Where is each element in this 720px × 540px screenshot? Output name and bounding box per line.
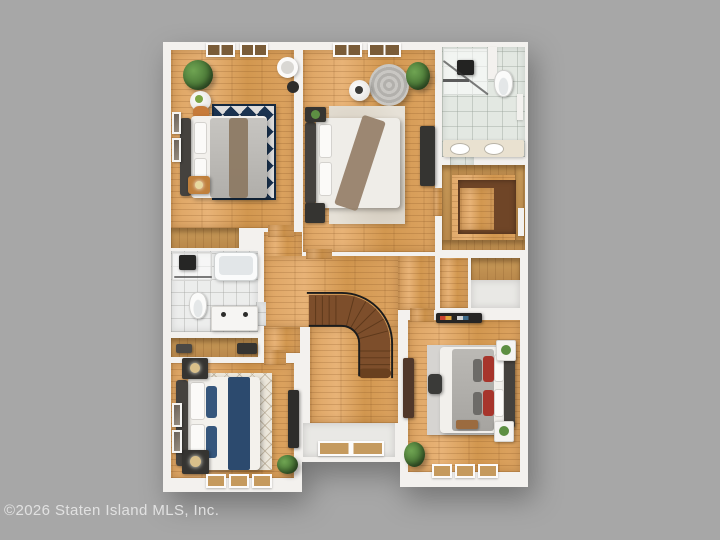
- window-bottom-left-1: [206, 474, 226, 488]
- bed-top-middle-pillow-1: [319, 124, 332, 158]
- plant-bottom-left-bedroom: [277, 455, 298, 474]
- hall-band-floor: [398, 256, 435, 310]
- bed-top-middle-pillow-2: [319, 162, 332, 196]
- wic-shelf-bottom: [442, 240, 525, 250]
- wall-art-bottom-left-2: [172, 430, 182, 453]
- closet-b-shelf: [471, 258, 520, 280]
- wall-art-top-left-1: [172, 112, 181, 134]
- lamp-bottom-left-2: [190, 456, 201, 467]
- wic-door-leaf: [518, 208, 524, 236]
- window-bottom-left-3: [252, 474, 272, 488]
- door-bedroom-top-left: [268, 225, 294, 237]
- shower-glass-ml: [174, 276, 212, 278]
- nightstand-top-middle-2: [305, 203, 325, 223]
- window-top-middle-2: [368, 43, 401, 57]
- fruit-bowl: [195, 95, 203, 103]
- bed-bottom-left-runner: [228, 377, 250, 470]
- sink-top-right-1: [450, 143, 470, 155]
- wic-shelf-left: [442, 165, 452, 250]
- window-bottom-right-2: [455, 464, 475, 478]
- door-bedroom-bottom-left: [264, 350, 286, 365]
- bed-bottom-right-gray-pillow-2: [473, 392, 482, 415]
- window-bottom-right-1: [432, 464, 452, 478]
- faucet-ml-1: [221, 312, 226, 317]
- door-bedroom-top-middle: [306, 249, 332, 259]
- window-top-left-2: [240, 43, 268, 57]
- window-top-left-1: [206, 43, 235, 57]
- linen-closet-items-2: [176, 344, 192, 353]
- wall-shelf-bottom-right: [436, 313, 482, 323]
- stool-bottom-right: [428, 374, 442, 394]
- window-bottom-right-3: [478, 464, 498, 478]
- staircase: [303, 291, 395, 383]
- shelf-books: [440, 316, 478, 320]
- bed-bottom-right-red-pillow-2: [483, 390, 494, 416]
- bathtub-interior: [219, 256, 253, 275]
- round-mirror: [277, 57, 298, 78]
- floor-plan-photo: ©2026 Staten Island MLS, Inc.: [0, 0, 720, 540]
- sink-top-right-2: [484, 143, 504, 155]
- closet-a-floor: [440, 258, 468, 308]
- console-bottom-left: [288, 390, 299, 448]
- toilet-middle-left: [189, 292, 207, 319]
- wic-shelf-top: [442, 165, 525, 175]
- nightstand-plant-1: [311, 110, 320, 119]
- bed-bottom-right-gray-pillow-1: [473, 359, 482, 382]
- pendant-light: [287, 81, 299, 93]
- bathroom-door-leaf: [517, 94, 523, 120]
- side-table-decor: [355, 86, 363, 94]
- media-console-top-middle: [420, 126, 435, 186]
- linen-closet-top-shelf: [171, 228, 239, 248]
- plant-top-middle-bedroom: [406, 62, 430, 90]
- bed-bottom-right-headboard: [504, 352, 515, 428]
- bed-bottom-right-pillow-2: [494, 389, 504, 417]
- shower-fixture-ml: [179, 255, 196, 270]
- dresser-bottom-right: [403, 358, 414, 418]
- plant-top-left-bedroom: [183, 60, 213, 90]
- bed-bottom-left-pillow-1: [190, 382, 205, 420]
- round-lounge-chair: [369, 64, 409, 106]
- vanity-middle-left: [211, 306, 258, 331]
- lamp-top-left: [195, 181, 203, 189]
- closet-b-floor: [471, 280, 520, 308]
- faucet-ml-2: [243, 312, 248, 317]
- bed-bench: [456, 420, 478, 429]
- linen-closet-items-1: [237, 343, 257, 354]
- mls-watermark: ©2026 Staten Island MLS, Inc.: [4, 502, 219, 519]
- landing-window: [318, 441, 384, 456]
- lamp-bottom-left-1: [190, 363, 200, 373]
- wall-art-top-left-2: [172, 138, 181, 162]
- wall-art-bottom-left-1: [172, 403, 182, 427]
- wic-inner-floor: [460, 188, 494, 230]
- bed-top-left-throw: [229, 118, 248, 198]
- toilet-top-right: [494, 70, 513, 97]
- bed-top-left-pillow-1: [194, 122, 207, 154]
- bed-bottom-right-red-pillow-1: [483, 356, 494, 382]
- nightstand-plant-br-1: [501, 345, 511, 355]
- window-top-middle-1: [333, 43, 362, 57]
- door-bedroom-bottom-right: [410, 308, 434, 322]
- window-bottom-left-2: [229, 474, 249, 488]
- bed-top-middle-headboard: [305, 122, 316, 204]
- bed-bottom-left-navy-pillow-1: [206, 386, 217, 418]
- shower-bar: [443, 79, 469, 82]
- nightstand-plant-br-2: [499, 426, 509, 436]
- plant-bottom-right-bedroom: [404, 442, 425, 467]
